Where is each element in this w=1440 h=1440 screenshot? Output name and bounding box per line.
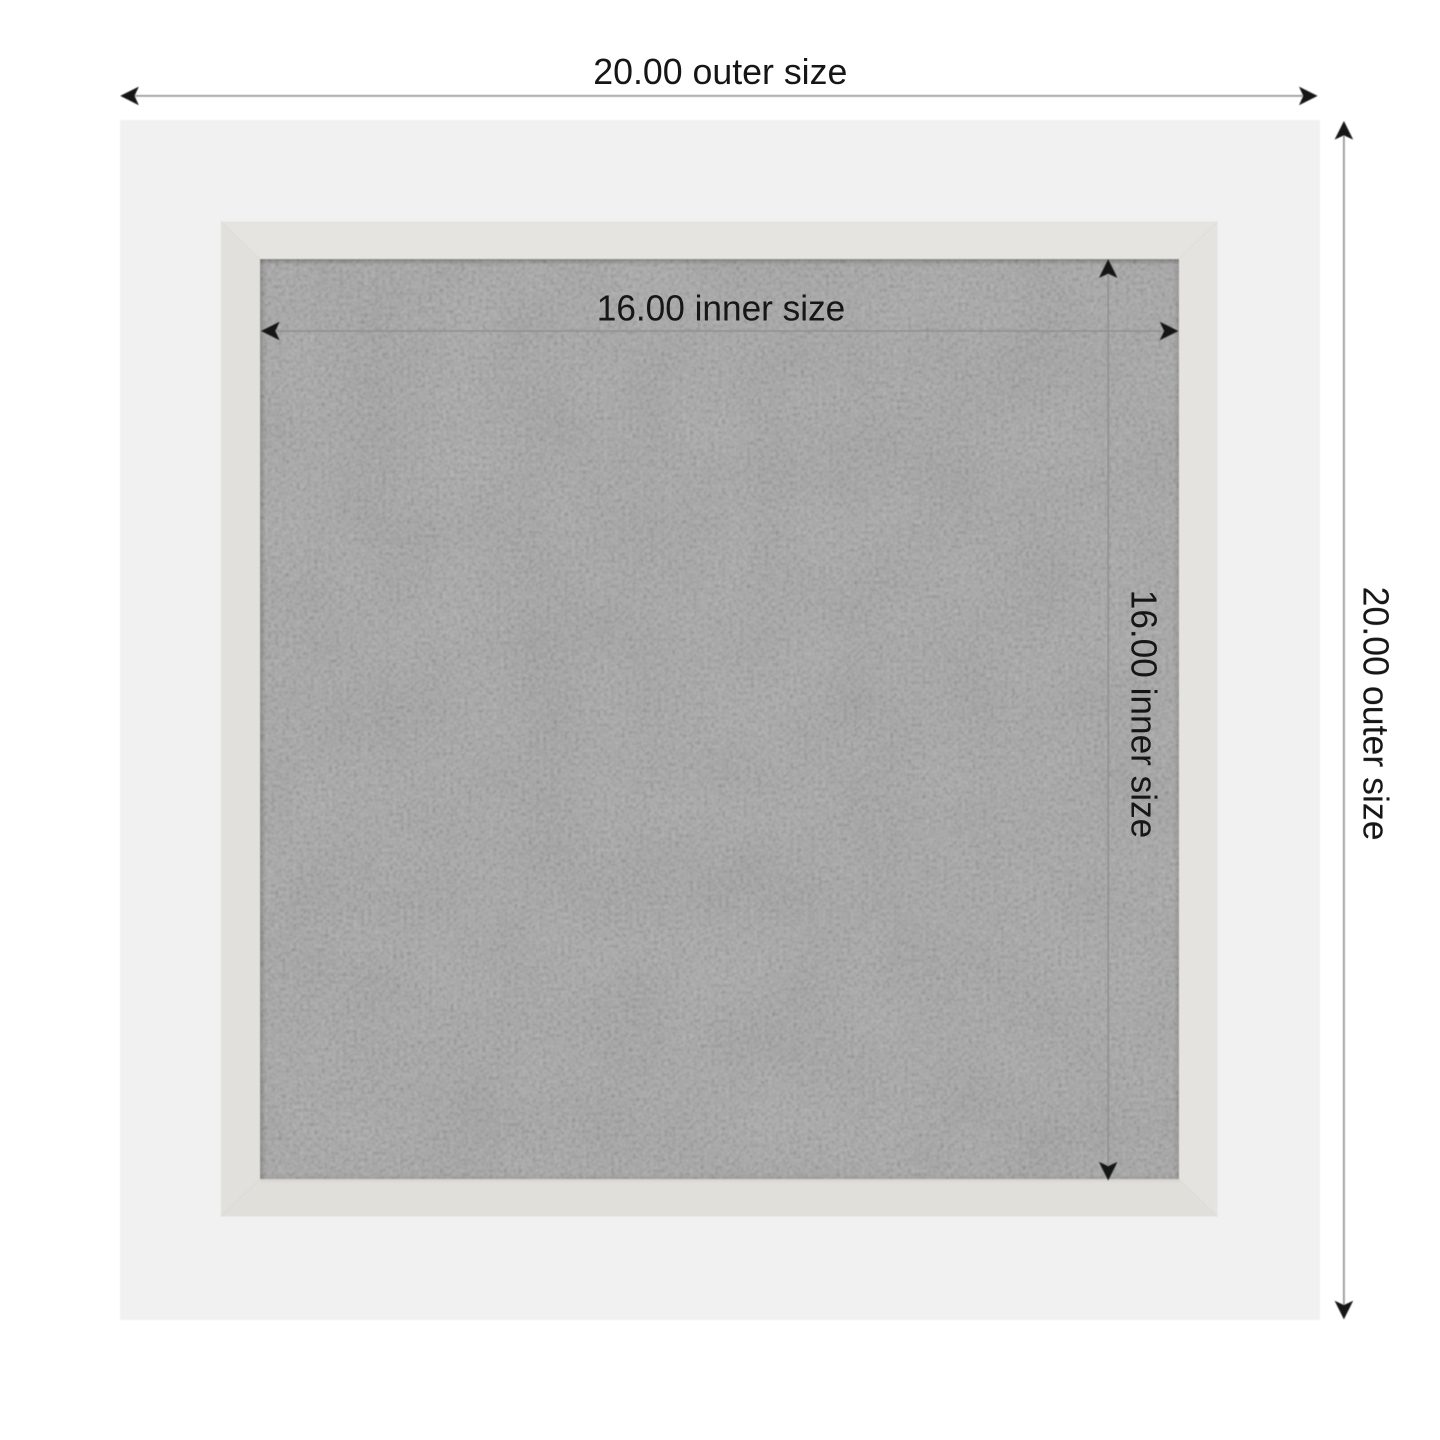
svg-text:20.00 outer size: 20.00 outer size	[1356, 587, 1397, 841]
svg-text:20.00 outer size: 20.00 outer size	[593, 51, 847, 92]
svg-text:16.00 inner size: 16.00 inner size	[1124, 590, 1165, 839]
svg-text:16.00 inner size: 16.00 inner size	[597, 287, 846, 328]
